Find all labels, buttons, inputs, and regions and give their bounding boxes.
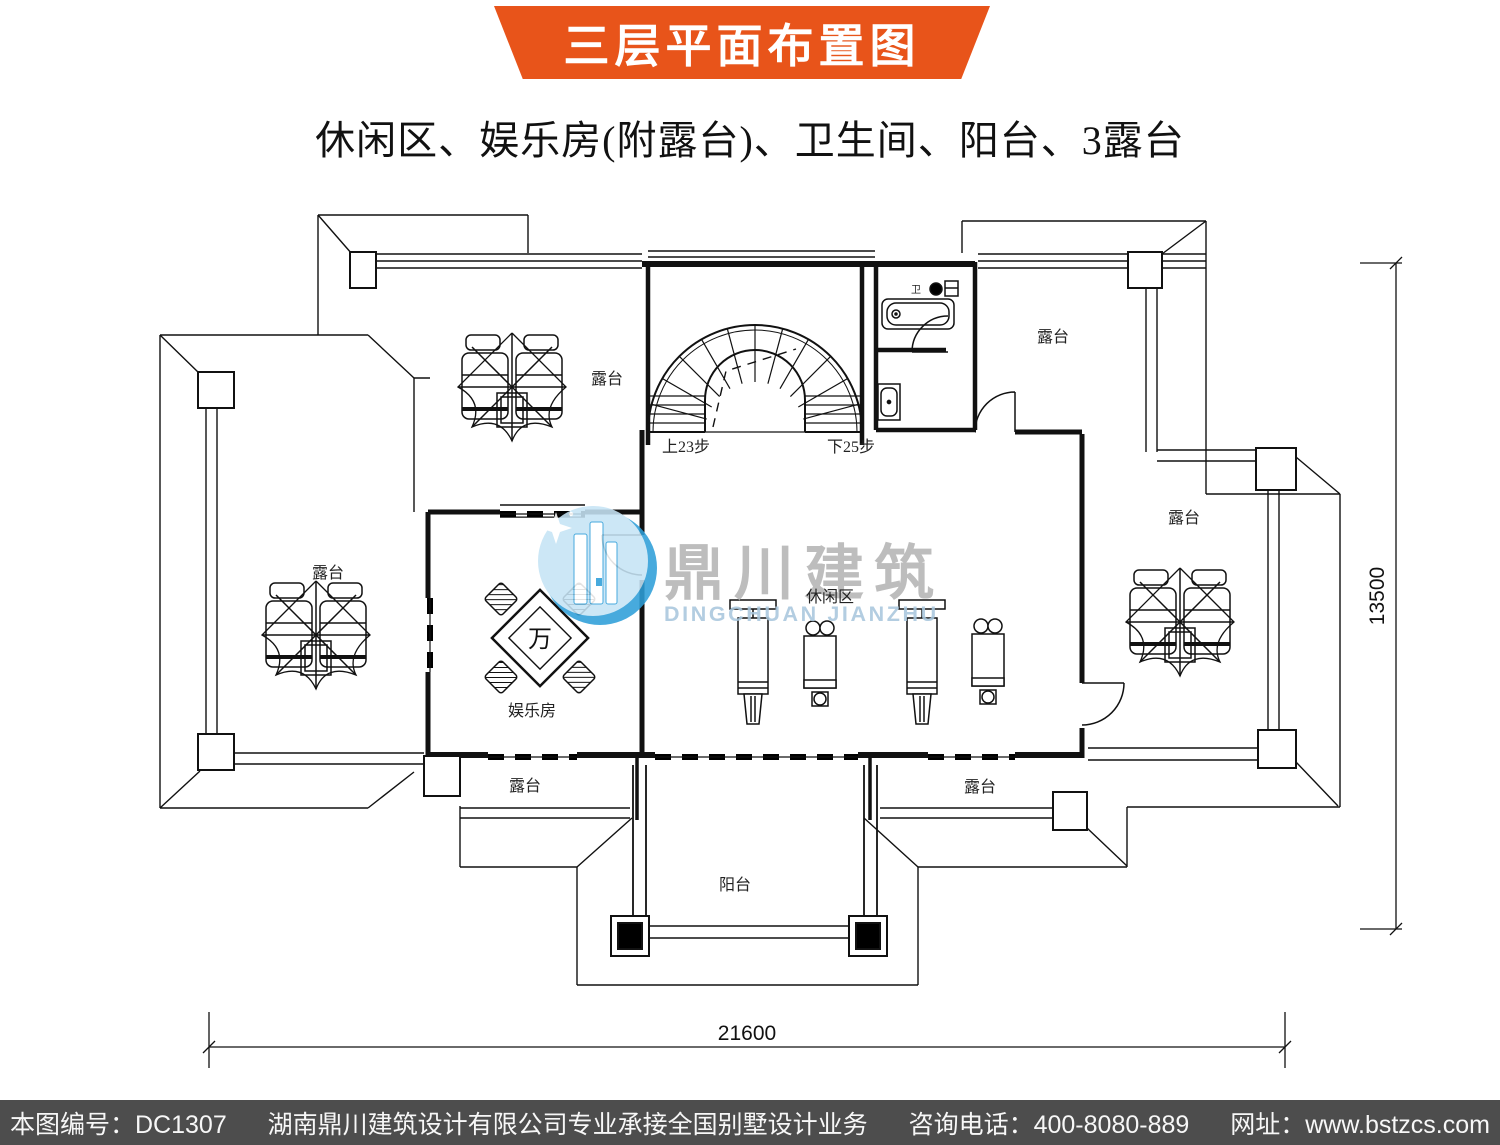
label-leisure-area: 休闲区	[806, 588, 854, 606]
page: 三层平面布置图 休闲区、娱乐房(附露台)、卫生间、阳台、3露台	[0, 0, 1500, 1145]
staircase	[648, 325, 862, 432]
label-terrace-bottom-left: 露台	[509, 777, 541, 795]
floor-plan-drawing: 鼎川建筑 DINGCHUAN JIANZHU 露台 露台 露台 露台 露台 露台…	[0, 0, 1500, 1145]
label-terrace-top-left: 露台	[591, 370, 623, 388]
label-terrace-bottom-right: 露台	[964, 778, 996, 796]
dimension-width: 21600	[718, 1022, 776, 1045]
label-terrace-left: 露台	[312, 564, 344, 582]
label-terrace-top-right: 露台	[1037, 328, 1069, 346]
furniture	[262, 333, 1234, 724]
footer-bar: 本图编号：DC1307 湖南鼎川建筑设计有限公司专业承接全国别墅设计业务 咨询电…	[0, 1100, 1500, 1145]
mahjong-tile-glyph: 万	[528, 627, 552, 653]
exercise-bike-2	[972, 619, 1004, 704]
label-stairs-up: 上23步	[662, 438, 710, 456]
phone-number: 咨询电话：400-8080-889	[909, 1105, 1190, 1141]
lounge-set-top-left	[458, 333, 566, 441]
drawing-number: 本图编号：DC1307	[10, 1105, 227, 1141]
watermark: 鼎川建筑 DINGCHUAN JIANZHU	[538, 506, 944, 626]
toilet-icon	[930, 283, 942, 295]
lounge-set-left	[262, 581, 370, 689]
label-stairs-down: 下25步	[827, 438, 875, 456]
watermark-en: DINGCHUAN JIANZHU	[664, 602, 939, 626]
exercise-bike-1	[804, 621, 836, 706]
label-bathroom: 卫	[911, 285, 921, 296]
watermark-cn: 鼎川建筑	[664, 540, 944, 607]
label-balcony: 阳台	[719, 876, 751, 894]
label-entertainment-room: 娱乐房	[508, 702, 556, 720]
lounge-set-right	[1126, 568, 1234, 676]
label-terrace-right: 露台	[1168, 509, 1200, 527]
balcony-columns	[611, 916, 887, 956]
dimensions	[203, 257, 1402, 1068]
website: 网址：www.bstzcs.com	[1230, 1105, 1490, 1141]
dimension-height: 13500	[1366, 567, 1389, 625]
company-name: 湖南鼎川建筑设计有限公司专业承接全国别墅设计业务	[268, 1105, 868, 1141]
